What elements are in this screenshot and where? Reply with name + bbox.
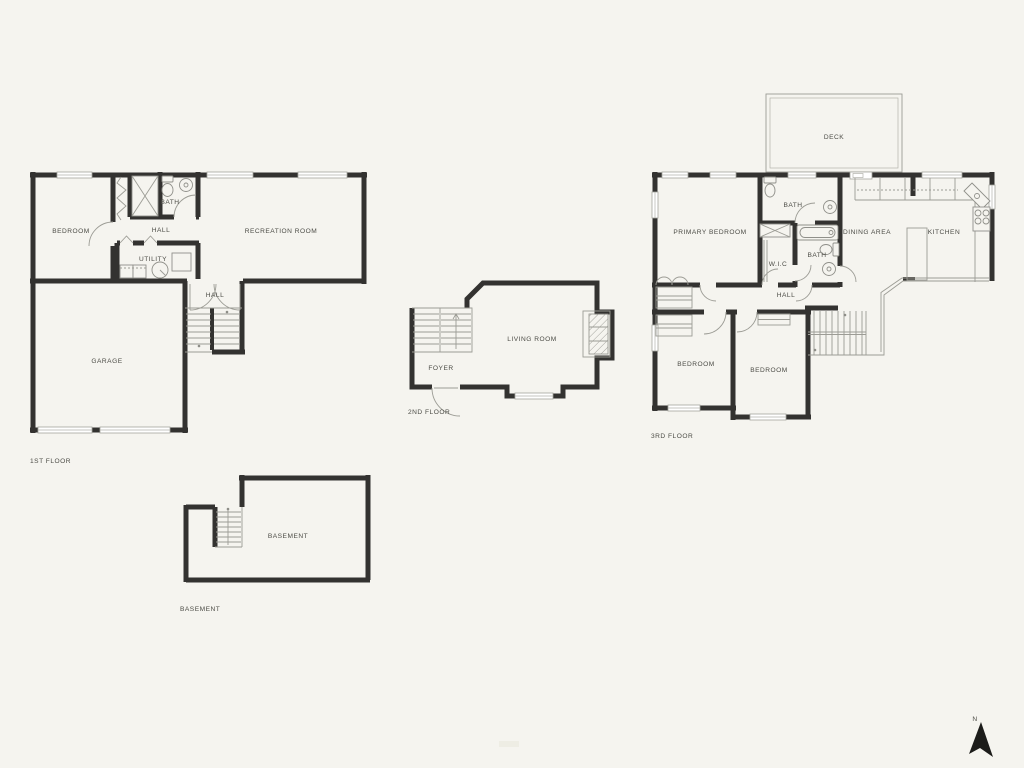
floor-plan-canvas: BEDROOM BATH HALL UTILITY RECREATION ROO… [0,0,1024,768]
recreation-room-label: RECREATION ROOM [245,228,318,235]
utility-label: UTILITY [139,256,167,263]
hall-lower-label: HALL [206,292,225,299]
background [0,0,1024,768]
basement-room-label: BASEMENT [268,533,308,540]
north-label: N [972,716,977,723]
deck-door [850,172,872,179]
basement-caption: BASEMENT [180,606,220,613]
second-floor-windows [515,393,553,399]
foyer-label: FOYER [428,365,453,372]
deck-label: DECK [824,134,844,141]
wic-label: W.I.C [769,261,788,268]
third-floor-caption: 3RD FLOOR [651,433,693,440]
primary-bedroom-label: PRIMARY BEDROOM [673,229,746,236]
bedroom-label: BEDROOM [52,228,90,235]
bedroom-right-label: BEDROOM [750,367,788,374]
hall-upper-label: HALL [152,227,171,234]
bath-label: BATH [160,199,179,206]
bath-lower-label: BATH [807,252,826,259]
second-floor-caption: 2ND FLOOR [408,409,450,416]
bedroom-left-label: BEDROOM [677,361,715,368]
hall-label: HALL [777,292,796,299]
living-room-label: LIVING ROOM [507,336,556,343]
watermark [499,741,519,747]
kitchen-label: KITCHEN [928,229,960,236]
first-floor-caption: 1ST FLOOR [30,458,71,465]
bath-upper-label: BATH [783,202,802,209]
dining-area-label: DINING AREA [843,229,891,236]
garage-label: GARAGE [91,358,122,365]
